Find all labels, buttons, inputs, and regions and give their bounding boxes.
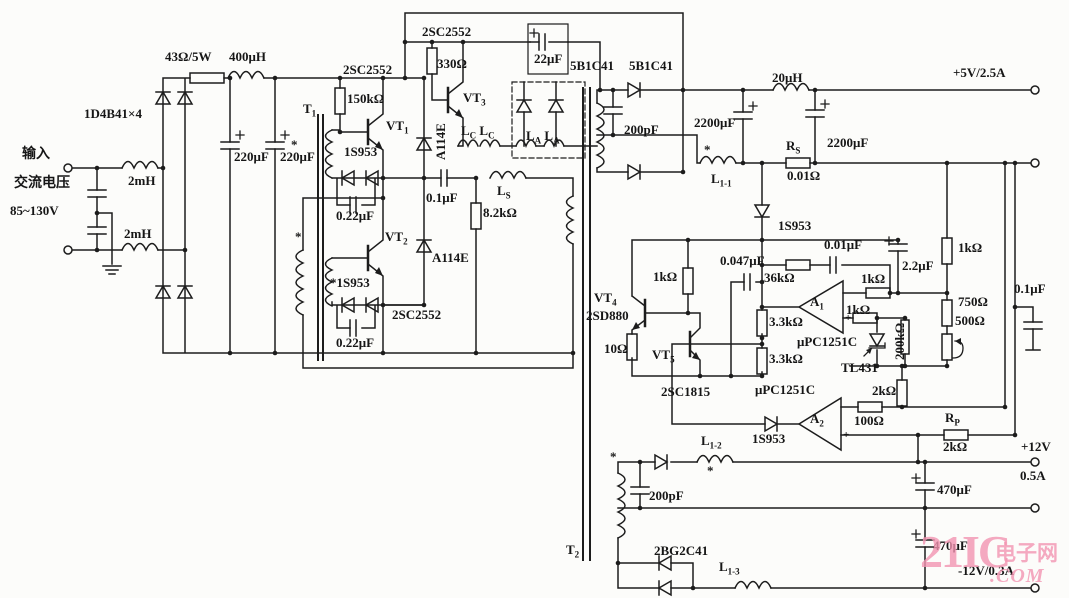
resistor-1k-vt4-icon <box>683 268 693 294</box>
cap-22uf-icon <box>539 34 545 50</box>
resistor-1k-right-icon <box>942 238 952 264</box>
watermark-com: .COM <box>990 566 1045 586</box>
input-choke-bottom-icon <box>122 244 158 251</box>
resistor-33k-1-icon <box>757 310 767 336</box>
cap-0047uf-icon <box>744 274 750 290</box>
t1-core-icon <box>318 115 323 360</box>
cap-01uf-right-icon <box>1024 322 1042 329</box>
diode-1s953-4-icon <box>765 417 777 431</box>
ground-icon <box>103 266 121 274</box>
cap-22uf-small-icon <box>889 244 907 251</box>
terminal-5v-return <box>1031 159 1039 167</box>
terminal-5v <box>1031 86 1039 94</box>
vt3-drive-section <box>405 13 683 158</box>
schematic-page: 输入交流电压85~130V2mH2mH1D4B41×443Ω/5W400μH22… <box>0 0 1069 598</box>
t1-winding-top-icon <box>326 130 333 178</box>
input-terminal-bottom <box>64 246 72 254</box>
inductor-la-icon <box>544 140 564 146</box>
resistor-330-icon <box>427 48 437 74</box>
inductor-l1-3-icon <box>735 582 771 589</box>
inductor-lc-icon <box>480 140 500 146</box>
input-choke-top-icon <box>122 162 158 169</box>
cap-220uf-1-icon <box>221 142 239 149</box>
t1-halfbridge-section <box>296 78 573 368</box>
diode-5b1c41-icon <box>628 83 640 97</box>
inductor-l1-1-icon <box>700 157 736 164</box>
cap-200pf-top-icon <box>604 107 622 114</box>
resistor-750-icon <box>942 300 952 326</box>
resistor-1k-a1-bot-icon <box>853 313 877 323</box>
input-terminal-top <box>64 164 72 172</box>
resistor-rp-icon <box>944 430 968 440</box>
diode-12v-icon <box>655 455 667 469</box>
cap-022uf-2-icon <box>350 320 356 336</box>
resistor-10ohm-icon <box>627 334 637 360</box>
inductor-ls-icon <box>490 172 526 179</box>
t1-winding-bottom-icon <box>326 258 333 306</box>
resistor-100ohm-icon <box>858 402 882 412</box>
cap-01uf-icon <box>441 170 447 186</box>
t1-winding-left-icon <box>296 250 303 315</box>
inductor-400uh-icon <box>228 72 264 79</box>
cap-022uf-1-icon <box>350 197 356 213</box>
cap-200pf-bottom-icon <box>631 487 649 494</box>
diode-la-icon <box>549 100 563 112</box>
diode-2bg2c41-icon <box>659 581 671 595</box>
cap-470uf-1-icon <box>916 483 934 490</box>
pot-500-icon <box>942 334 963 360</box>
watermark-site-cn: 电子网 <box>995 543 1058 564</box>
resistor-2k-1-icon <box>897 380 907 406</box>
inductor-l1-2-icon <box>697 456 733 463</box>
opamp-a2-icon <box>799 398 841 450</box>
inductor-20uh-icon <box>773 84 809 91</box>
schematic-svg <box>0 0 1069 598</box>
resistor-200k-icon <box>901 320 909 354</box>
t2-5v-output-section <box>583 83 1039 560</box>
opamp-a1-icon <box>799 281 843 333</box>
diode-la-icon <box>517 100 531 112</box>
cap-2200uf-2-icon <box>806 110 824 117</box>
t2-primary-icon <box>567 196 574 244</box>
diode-1s953-3-icon <box>755 205 769 217</box>
resistor-33k-2-icon <box>757 348 767 374</box>
terminal-common <box>1031 504 1039 512</box>
resistor-82k-icon <box>471 203 481 229</box>
diode-5b1c41-icon <box>628 165 640 179</box>
tl431-icon <box>864 334 885 356</box>
t2-core-icon <box>583 88 590 560</box>
inductor-lc-icon <box>458 140 478 146</box>
resistor-36k-icon <box>786 260 810 270</box>
terminal-12v <box>1031 458 1039 466</box>
resistor-1k-a1-top-icon <box>866 288 890 298</box>
cap-2200uf-1-icon <box>734 112 752 119</box>
t2-secondary-12v-icon <box>618 473 625 538</box>
cap-220uf-2-icon <box>266 142 284 149</box>
inductor-la-icon <box>516 140 536 146</box>
resistor-rs-icon <box>786 158 810 168</box>
cap-001uf-icon <box>830 257 836 273</box>
resistor-150k-icon <box>335 88 345 114</box>
diode-2bg2c41-icon <box>659 556 671 570</box>
resistor-43ohm-icon <box>190 73 224 83</box>
